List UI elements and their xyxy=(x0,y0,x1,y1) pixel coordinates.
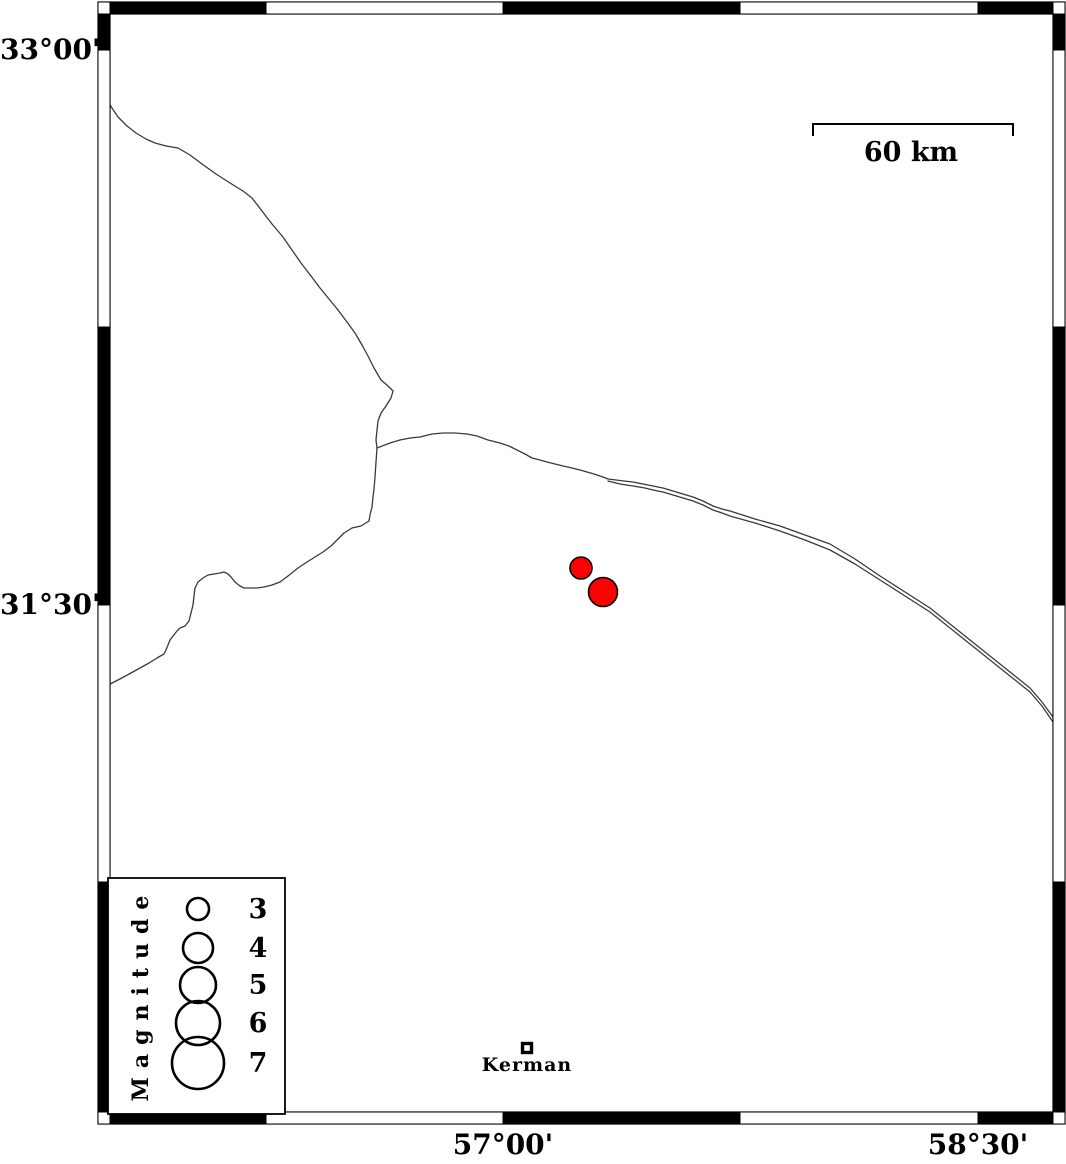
frame-bottom-segment xyxy=(740,1112,978,1124)
frame-right-segment xyxy=(1053,327,1065,605)
earthquake-marker xyxy=(570,557,592,579)
legend-value-5: 5 xyxy=(249,970,268,1001)
frame-right-segment xyxy=(1053,882,1065,1112)
boundary-east-south-line xyxy=(608,481,1053,722)
city-label-kerman: Kerman xyxy=(457,1054,597,1076)
lat-tick-label-31-30: 31°30' xyxy=(0,588,89,622)
frame-bottom-segment xyxy=(978,1112,1053,1124)
boundary-east-main-line xyxy=(377,433,1053,717)
frame-right-segment xyxy=(1053,605,1065,882)
seismicity-map-figure: 34567 33°00' 31°30' 57°00' 58°30' 60 km … xyxy=(0,0,1066,1164)
frame-top-segment xyxy=(740,2,978,14)
frame-bottom-segment xyxy=(266,1112,503,1124)
scalebar-label: 60 km xyxy=(831,137,991,168)
earthquake-marker xyxy=(589,578,618,607)
frame-corner-square xyxy=(1053,1112,1065,1124)
frame-corner-square xyxy=(98,2,110,14)
frame-bottom-segment xyxy=(503,1112,740,1124)
legend-value-6: 6 xyxy=(249,1008,268,1039)
map-canvas: 34567 xyxy=(0,0,1066,1164)
legend-title: Magnitude xyxy=(128,887,154,1102)
frame-left-segment xyxy=(98,605,110,882)
legend-value-3: 3 xyxy=(249,894,268,925)
legend-value-7: 7 xyxy=(249,1048,268,1079)
frame-left-segment xyxy=(98,327,110,605)
legend-value-4: 4 xyxy=(249,933,268,964)
frame-top-segment xyxy=(266,2,503,14)
frame-left-segment xyxy=(98,50,110,327)
frame-top-segment xyxy=(978,2,1053,14)
lat-tick-label-33-00: 33°00' xyxy=(0,33,89,67)
frame-right-segment xyxy=(1053,50,1065,327)
scalebar-bracket xyxy=(813,124,1013,136)
lon-tick-label-58-30: 58°30' xyxy=(898,1128,1058,1162)
frame-top-segment xyxy=(503,2,740,14)
lon-tick-label-57-00: 57°00' xyxy=(423,1128,583,1162)
boundary-nw-line xyxy=(108,105,393,685)
frame-top-segment xyxy=(110,2,266,14)
city-marker-kerman xyxy=(523,1044,532,1053)
frame-right-segment xyxy=(1053,14,1065,50)
frame-corner-square xyxy=(1053,2,1065,14)
